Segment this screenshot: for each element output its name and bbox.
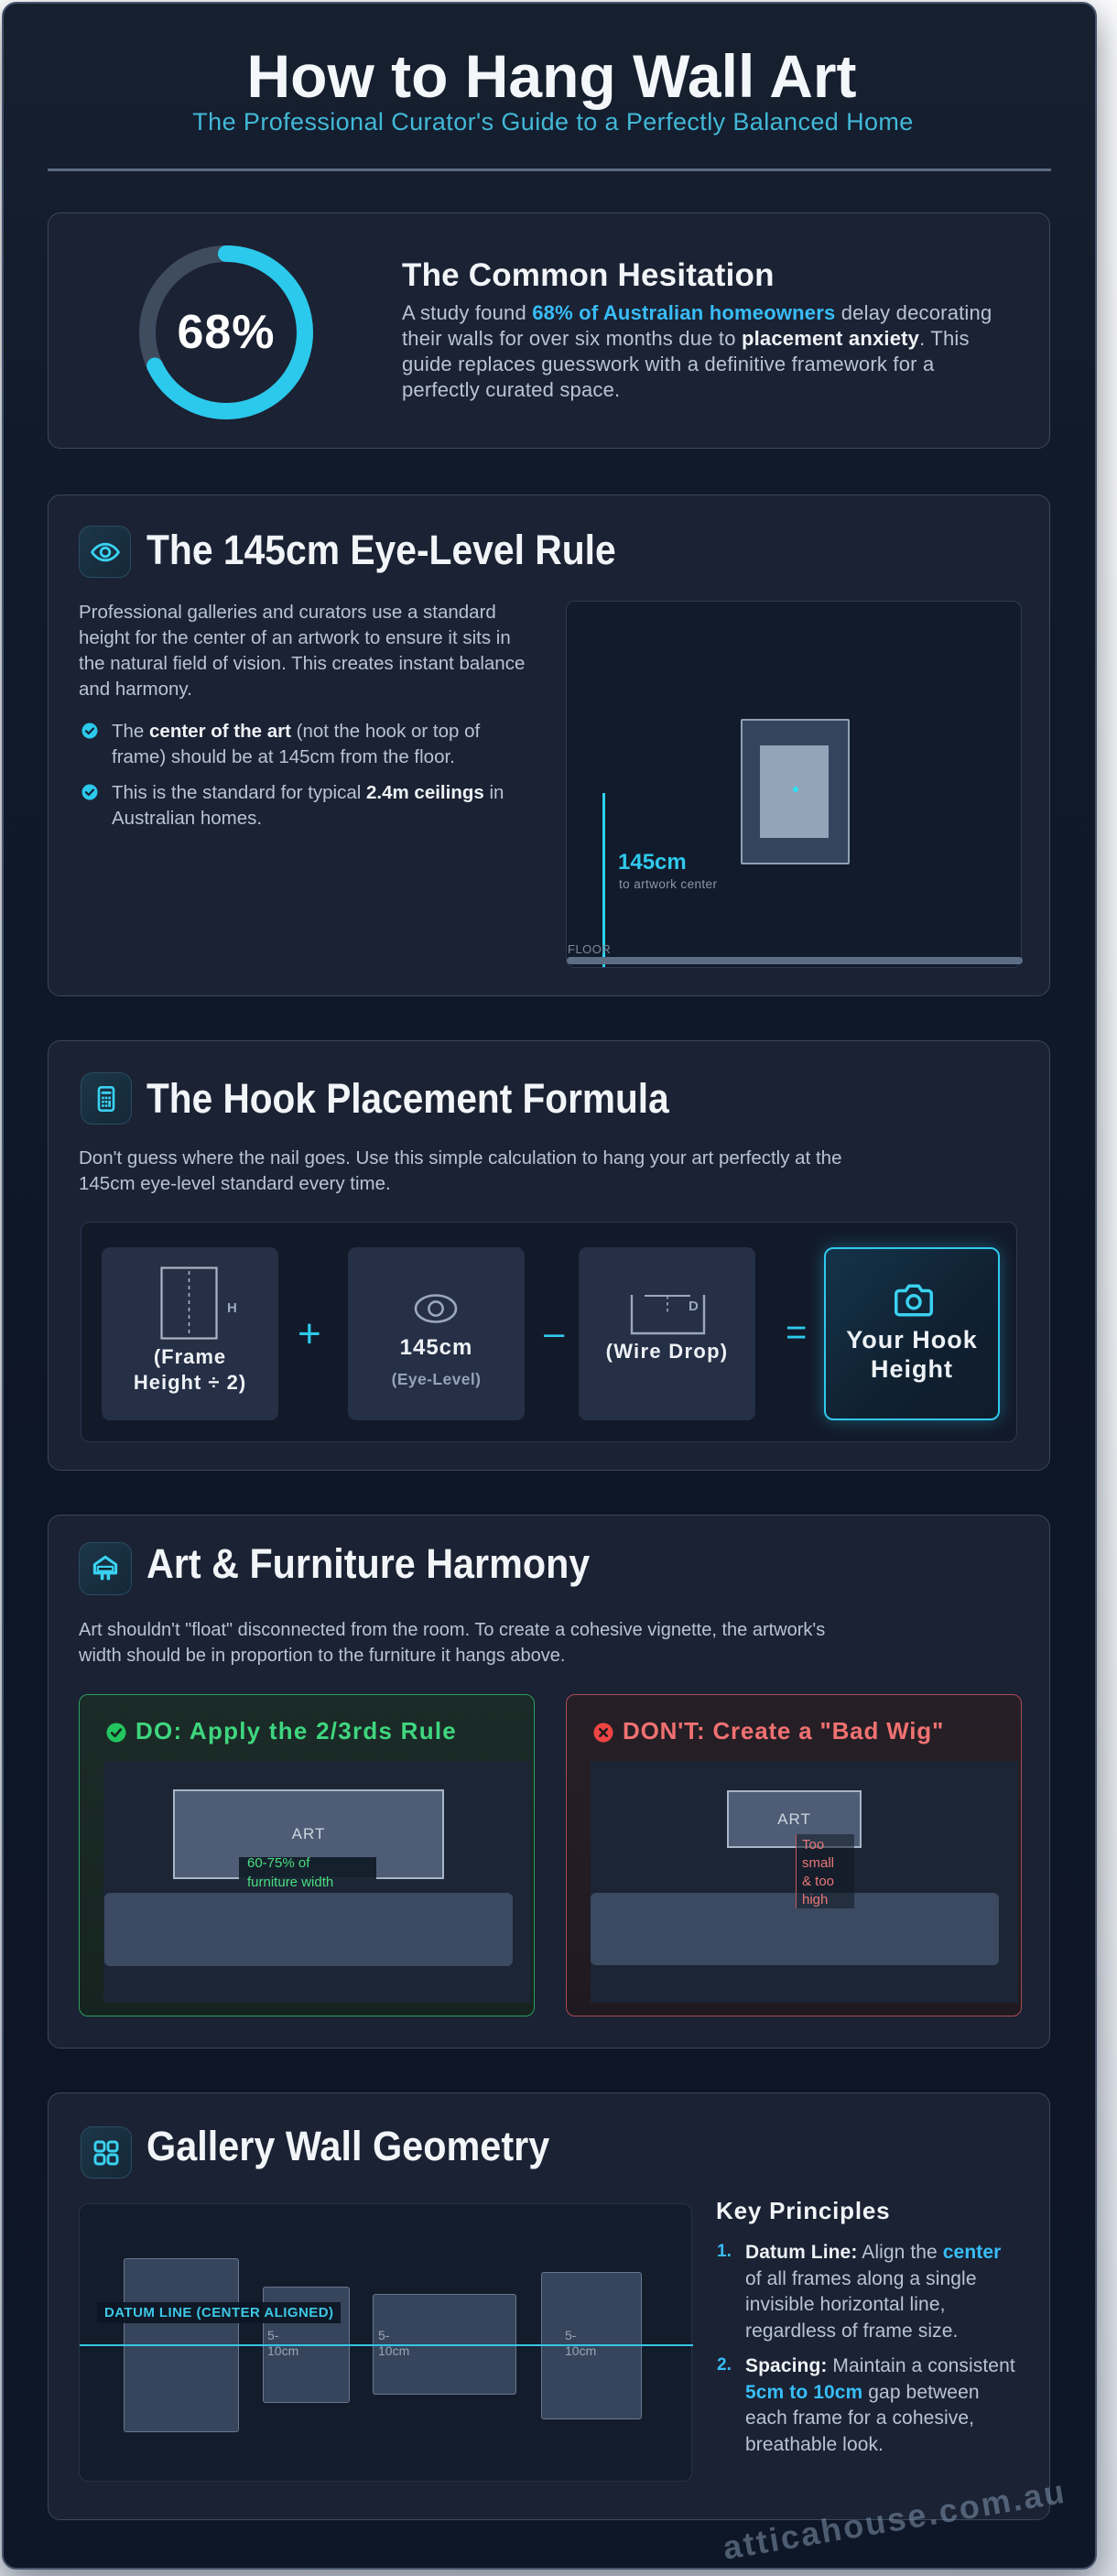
svg-text:H: H [227, 1300, 237, 1316]
svg-text:D: D [689, 1299, 699, 1314]
